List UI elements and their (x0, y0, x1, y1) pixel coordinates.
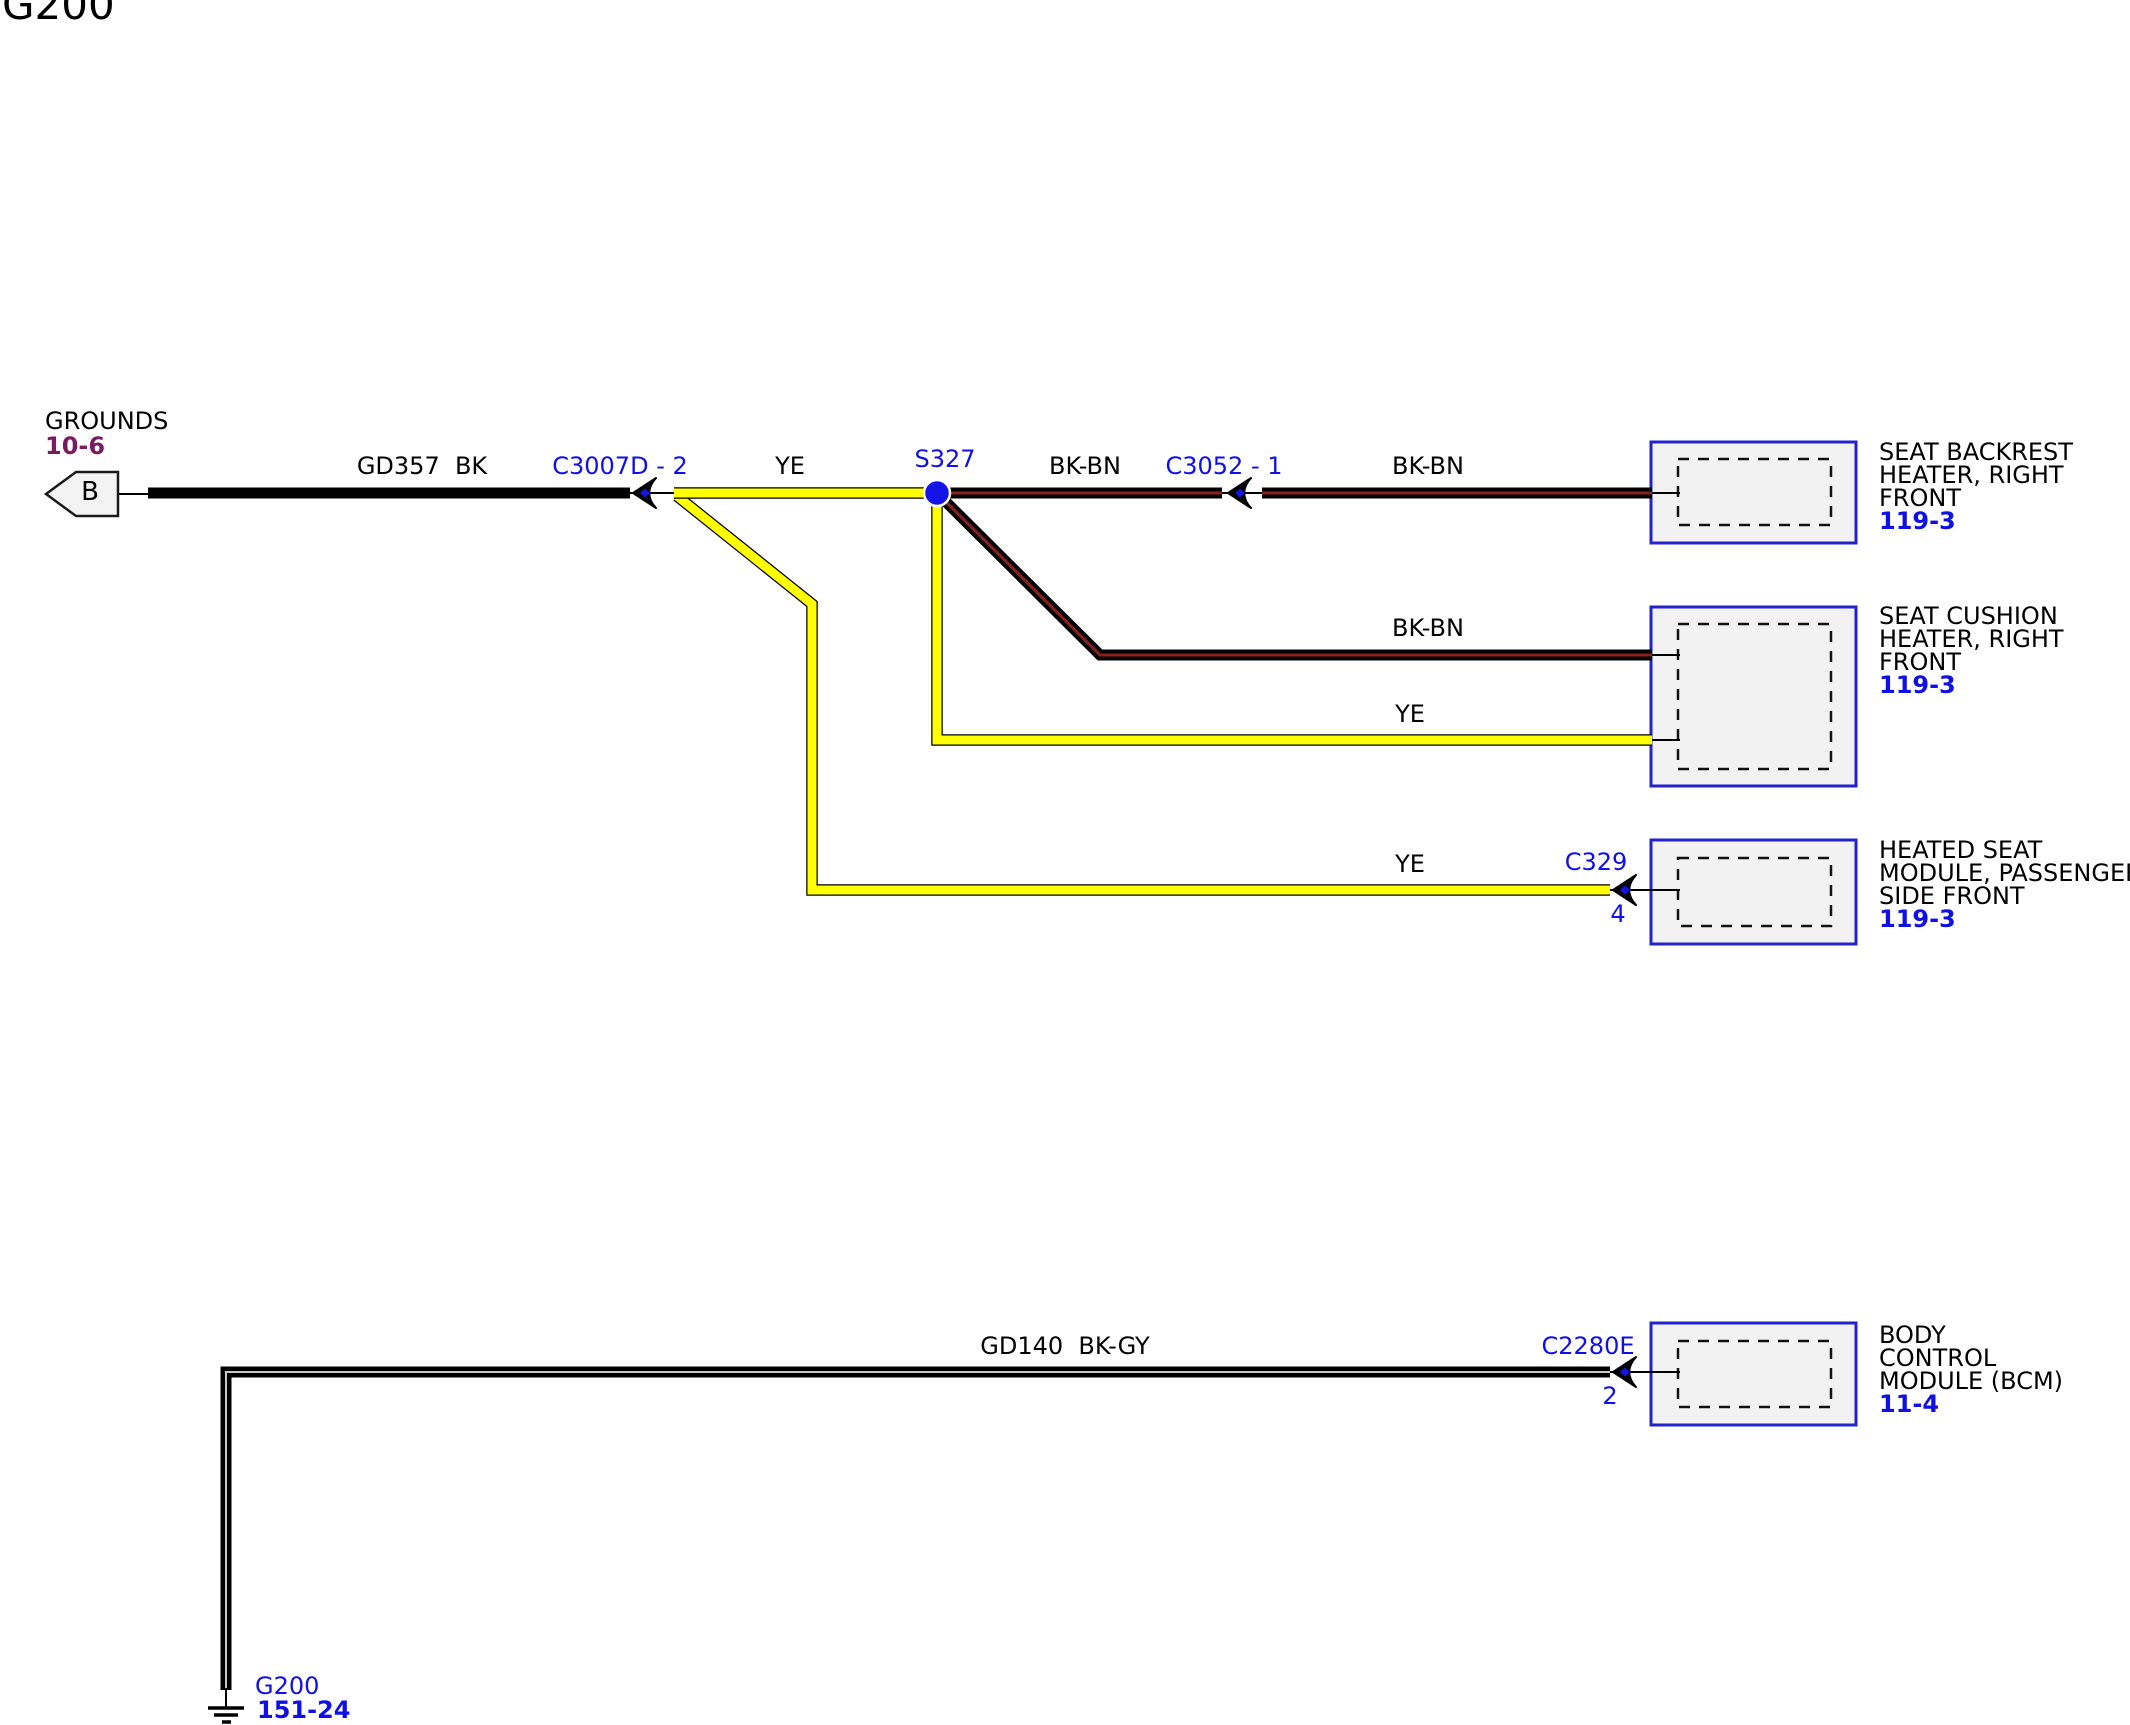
grounds-label: GROUNDS (45, 408, 168, 434)
wiring-diagram-graphics (0, 0, 2130, 1725)
wire-label-ye-cushion: YE (1395, 701, 1425, 727)
splice-dot-s327 (924, 480, 950, 506)
ground-symbol-g200 (208, 1688, 244, 1722)
splice-label-s327[interactable]: S327 (914, 446, 975, 472)
connector-pin-c2280e: 2 (1602, 1383, 1617, 1409)
wire-ye-branch-to-module (677, 496, 1610, 890)
component-label-seat-cushion: SEAT CUSHION HEATER, RIGHT FRONT 119-3 (1879, 605, 2064, 697)
connector-label-c329[interactable]: C329 (1565, 849, 1628, 875)
wire-label-ye-main: YE (775, 453, 805, 479)
connector-label-c2280e[interactable]: C2280E (1542, 1333, 1635, 1359)
component-page-ref[interactable]: 119-3 (1879, 510, 2073, 533)
page-title: G200 (2, 0, 115, 18)
wire-label-bkbn-3: BK-BN (1392, 615, 1464, 641)
wiring-diagram-canvas: G200 GROUNDS 10-6 B GD357 BK C3007D - 2 … (0, 0, 2130, 1725)
component-label-seat-backrest: SEAT BACKREST HEATER, RIGHT FRONT 119-3 (1879, 441, 2073, 533)
connector-pin-c329: 4 (1610, 901, 1625, 927)
wire-label-ye-module: YE (1395, 851, 1425, 877)
wire-label-gd357-bk: GD357 BK (357, 453, 487, 479)
component-label-heated-seat-module: HEATED SEAT MODULE, PASSENGER SIDE FRONT… (1879, 839, 2130, 931)
component-label-bcm: BODY CONTROL MODULE (BCM) 11-4 (1879, 1324, 2063, 1416)
ground-page-ref[interactable]: 151-24 (257, 1697, 350, 1723)
flag-letter-b: B (70, 479, 110, 505)
wire-label-bkbn-2: BK-BN (1392, 453, 1464, 479)
wire-gd140-bkgy (226, 1372, 1610, 1690)
component-box-heated-seat-module (1651, 840, 1856, 944)
connector-label-c3007d[interactable]: C3007D - 2 (552, 453, 688, 479)
wire-bkbn-splice-to-cushion (937, 493, 1652, 655)
component-box-bcm (1651, 1323, 1856, 1425)
wire-label-gd140: GD140 BK-GY (980, 1333, 1149, 1359)
component-page-ref[interactable]: 119-3 (1879, 674, 2064, 697)
component-box-seat-cushion-heater (1651, 607, 1856, 786)
connector-label-c3052[interactable]: C3052 - 1 (1165, 453, 1282, 479)
wire-ye-main-and-cushion (674, 493, 1652, 740)
grounds-page-ref[interactable]: 10-6 (45, 433, 105, 459)
component-page-ref[interactable]: 11-4 (1879, 1393, 2063, 1416)
component-page-ref[interactable]: 119-3 (1879, 908, 2130, 931)
wire-label-bkbn-1: BK-BN (1049, 453, 1121, 479)
component-box-seat-backrest-heater (1651, 442, 1856, 543)
